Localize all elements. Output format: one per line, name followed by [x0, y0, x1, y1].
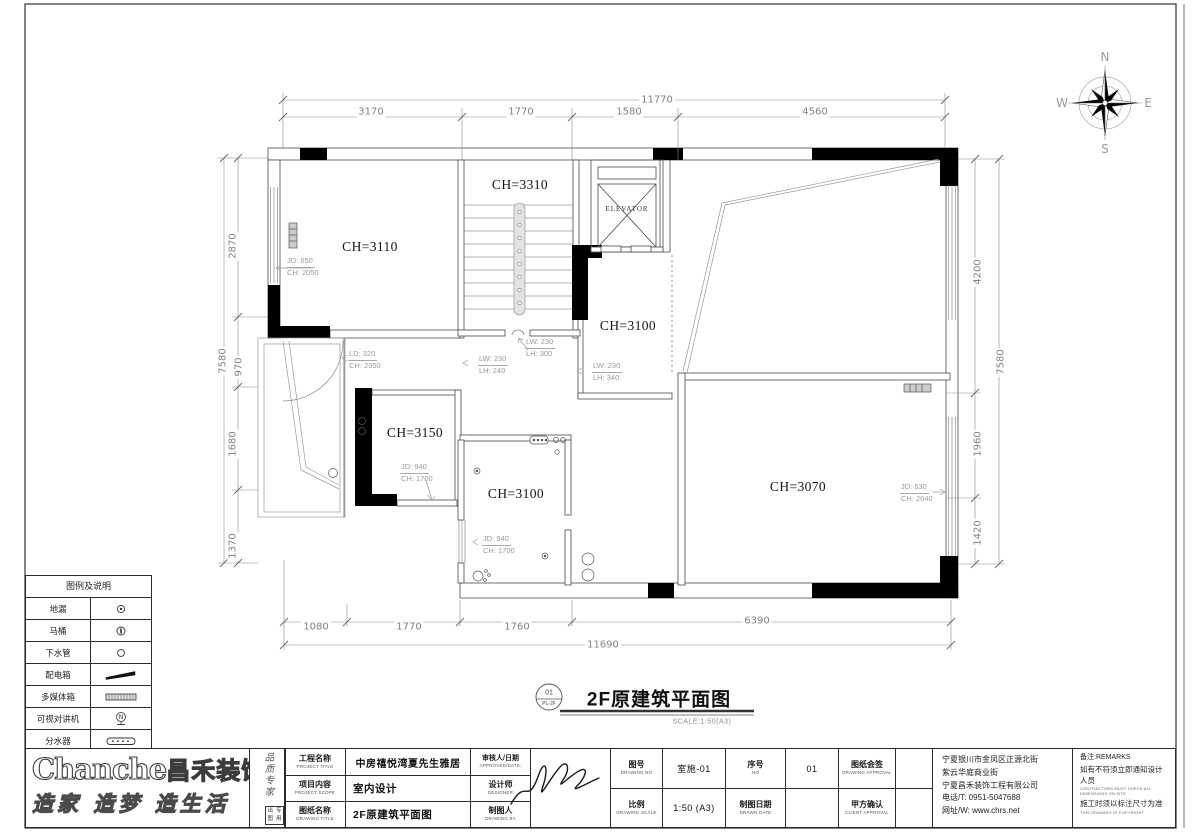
dim-left-seg-4: 1370 — [228, 531, 239, 560]
drawing-sheet: 3170 1770 1580 4560 11770 2870 970 1680 … — [0, 0, 1200, 833]
annotation-lw230-lh340: LW: 230 LH: 340 — [592, 361, 622, 383]
compass-north-label: N — [1101, 50, 1110, 64]
compass-rose-icon — [1068, 66, 1142, 140]
annotation-jd940-a: JD: 940 CH: 1700 — [400, 462, 433, 484]
room-label-ch3100-bottom: CH=3100 — [488, 486, 544, 502]
fixture-symbols — [289, 223, 931, 581]
field-label-client-approval: 甲方确认 CLIENT APPROVAL — [838, 788, 896, 828]
room-label-ch3100-mid: CH=3100 — [600, 318, 656, 334]
company-address1: 宁夏银川市金凤区正源北街 — [942, 754, 1063, 767]
legend-table: 图例及说明 地漏 马桶 下水管 配电箱 多媒体箱 可视对讲机 N 分水器 — [25, 575, 152, 752]
dim-left-overall: 7580 — [218, 346, 229, 375]
field-label-drawn-date: 制图日期 DRAWN DATE — [725, 788, 786, 828]
title-bubble-ref: PL-2F — [542, 701, 556, 707]
field-label-no: 序号 NO — [725, 748, 786, 789]
company-stamp: 出图 专用 — [265, 806, 284, 825]
legend-row: 地漏 — [26, 598, 151, 620]
dim-bottom-seg-4: 6390 — [742, 616, 771, 627]
remarks-line1: 如有不符须立即通知设计人员 — [1080, 765, 1168, 785]
dim-left-seg-3: 1680 — [228, 429, 239, 458]
field-value-drawn-date — [785, 788, 839, 828]
page-title: 2F原建筑平面图 — [587, 685, 731, 712]
field-value-project-scope: 室内设计 — [345, 775, 471, 802]
company-address2: 紫云华庭商业街 — [942, 767, 1063, 780]
company-web: 网址/W: www.chrs.net — [942, 805, 1063, 818]
toilet-icon — [582, 553, 594, 565]
water-manifold-icon — [104, 734, 138, 748]
legend-label-toilet: 马桶 — [26, 620, 91, 641]
field-label-project-title: 工程名称 PROJECT TITLE — [284, 748, 346, 776]
brand-logo-cn: 昌禾装饰 — [166, 756, 250, 785]
room-label-elevator: ELEVATOR — [605, 205, 648, 213]
legend-label-floor-drain: 地漏 — [26, 598, 91, 619]
dim-left-seg-2: 970 — [234, 355, 245, 378]
video-intercom-icon: N — [111, 711, 131, 727]
dim-top-seg-2: 1770 — [506, 107, 535, 118]
svg-text:N: N — [119, 714, 124, 721]
multimedia-box-icon — [104, 690, 138, 704]
compass-east-label: E — [1144, 96, 1152, 110]
legend-row: 可视对讲机 N — [26, 708, 151, 730]
field-value-drawing-title: 2F原建筑平面图 — [345, 801, 471, 828]
brand-cell: Chanche昌禾装饰 造家 造梦 造生活 — [25, 748, 250, 828]
remarks-line2-en: THIS DRAWING IS COPYRIGHT — [1080, 810, 1168, 815]
dim-top-seg-4: 4560 — [800, 107, 829, 118]
dim-bottom-seg-2: 1770 — [394, 622, 423, 633]
motto-cell: 品质专家 出图 专用 — [249, 748, 286, 828]
dim-bottom-seg-3: 1760 — [502, 622, 531, 633]
legend-row: 马桶 — [26, 620, 151, 642]
legend-row: 多媒体箱 — [26, 686, 151, 708]
toilet-icon — [582, 569, 594, 581]
remarks-cell: 备注:REMARKS 如有不符须立即通知设计人员 CONTRACTORS MUS… — [1072, 748, 1176, 828]
dim-right-seg-2: 1960 — [973, 429, 984, 458]
field-label-drawing-title: 图纸名称 DRAWING TITLE — [284, 801, 346, 828]
brand-logo-en: Chanche — [32, 752, 166, 786]
title-bubble-number: 01 — [545, 690, 553, 697]
room-label-ch3310: CH=3310 — [492, 177, 548, 193]
field-value-scale: 1:50 (A3) — [662, 788, 726, 828]
company-info-cell: 宁夏银川市金凤区正源北街 紫云华庭商业街 宁夏昌禾装饰工程有限公司 电话/T: … — [932, 748, 1073, 828]
dim-right-seg-1: 4200 — [973, 257, 984, 286]
dim-right-overall: 7580 — [996, 347, 1007, 376]
room-label-ch3070: CH=3070 — [770, 479, 826, 495]
distribution-box-icon — [104, 668, 138, 682]
field-value-drawing-approval — [895, 748, 933, 789]
drain-pipe-icon — [113, 646, 129, 660]
company-phone: 电话/T: 0951-5047688 — [942, 792, 1063, 805]
field-label-drawing-approval: 图纸会签 DRAWING APPROVAL — [838, 748, 896, 789]
vertical-motto: 品质专家 — [261, 752, 275, 798]
dim-top-overall: 11770 — [639, 95, 675, 106]
annotation-jd630: JD: 630 CH: 2040 — [900, 482, 933, 504]
annotation-lw230-lh300: LW: 230 LH: 300 — [525, 337, 555, 359]
room-label-ch3110: CH=3110 — [342, 239, 398, 255]
stairs — [464, 203, 573, 335]
dim-top-seg-3: 1580 — [614, 107, 643, 118]
annotation-ld320: LD: 320 CH: 2350 — [348, 349, 381, 371]
company-name: 宁夏昌禾装饰工程有限公司 — [942, 780, 1063, 793]
toilet-icon — [473, 571, 483, 581]
remarks-title: 备注:REMARKS — [1080, 753, 1168, 762]
balcony — [258, 338, 345, 517]
scale-note: SCALE:1:50(A3) — [673, 719, 732, 726]
drain-pipe-icon — [329, 469, 338, 478]
dim-bottom-overall: 11690 — [585, 640, 621, 651]
field-value-drawing-no: 室施-01 — [662, 748, 726, 789]
annotation-jd940-b: JD: 940 CH: 1700 — [482, 534, 515, 556]
designer-signature — [505, 752, 625, 824]
legend-row: 下水管 — [26, 642, 151, 664]
dim-left-seg-1: 2870 — [228, 231, 239, 260]
annotation-jd650: JD: 650 CH: 2050 — [286, 256, 319, 278]
legend-label-drain-pipe: 下水管 — [26, 642, 91, 663]
legend-row: 配电箱 — [26, 664, 151, 686]
remarks-line2: 施工时须以标注尺寸为准 — [1080, 799, 1168, 809]
multimedia-box-icon — [904, 384, 931, 392]
floor-drain-icon — [113, 602, 129, 616]
field-value-client-approval — [895, 788, 933, 828]
legend-label-multimedia-box: 多媒体箱 — [26, 686, 91, 707]
multimedia-box-icon — [289, 223, 297, 248]
water-manifold-icon — [530, 436, 548, 444]
room-label-ch3150: CH=3150 — [387, 425, 443, 441]
dim-bottom-seg-1: 1080 — [301, 622, 330, 633]
compass-west-label: W — [1056, 96, 1068, 110]
field-label-project-scope: 项目内容 PROJECT SCOPE — [284, 775, 346, 802]
compass-south-label: S — [1101, 142, 1109, 156]
field-value-no: 01 — [785, 748, 839, 789]
drain-pipe-icon — [555, 450, 559, 454]
field-value-project-title: 中房禧悦湾夏先生雅居 — [345, 748, 471, 776]
legend-title: 图例及说明 — [26, 576, 151, 598]
legend-label-video-intercom: 可视对讲机 — [26, 708, 91, 729]
remarks-line1-en: CONTRACTORS MUST CHECK ALL DIMENSIONS ON… — [1080, 786, 1168, 797]
dim-right-seg-3: 1420 — [973, 518, 984, 547]
toilet-icon — [113, 624, 129, 638]
brand-slogan: 造家 造梦 造生活 — [32, 788, 230, 818]
void-roof-diagonals — [672, 159, 940, 373]
dim-top-seg-1: 3170 — [356, 107, 385, 118]
annotation-lw230-lh240: LW: 230 LH: 240 — [478, 354, 508, 376]
legend-label-distribution-box: 配电箱 — [26, 664, 91, 685]
